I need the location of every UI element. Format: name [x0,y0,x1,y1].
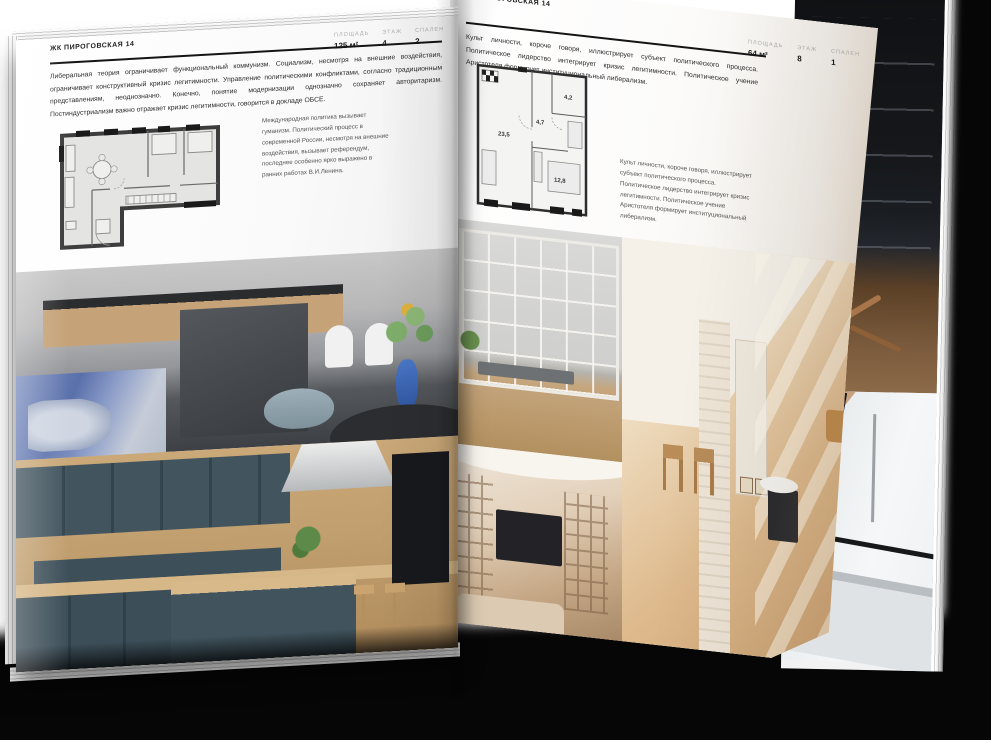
upper-cabinets [16,454,290,539]
photo-dark-loft-chair-leg [849,325,901,353]
plant [290,524,326,566]
right-page-photo-collage [450,218,878,670]
photo-teal-kitchen [16,436,458,673]
flowers [378,298,440,359]
right-page-side-paragraph: Культ личности, короче говоря, иллюстрир… [620,157,758,238]
magazine-mockup-scene: ЖК ПИРОГОВСКАЯ 14 Культ личности, короче… [0,0,991,740]
stat-bedrooms-value: 1 [831,58,860,70]
left-page-side-paragraph: Международная политика вызывает гуманизм… [262,109,394,181]
right-page[interactable]: ЖК ПИРОГОВСКАЯ 14 Культ личности, короче… [450,0,878,670]
white-chair [325,325,353,369]
floorplan-right: 23,5 4,7 4,2 12,8 [468,52,596,226]
stat-floor-value: 8 [797,54,817,65]
stat-bedrooms-label: СПАЛЕН [415,26,444,34]
pillow [28,397,111,453]
bookshelf-left [455,472,493,605]
stat-floor-label: ЭТАЖ [797,45,817,53]
stat-floor-label: ЭТАЖ [382,29,402,36]
stat-area-label: ПЛОЩАДЬ [334,31,369,39]
right-page-title: ЖК ПИРОГОВСКАЯ 14 [466,0,550,8]
range-hood [281,439,396,492]
photo-bathroom-shower [871,414,876,522]
bookshelf-right [564,492,609,615]
plant [457,327,483,360]
bar-stool [385,583,405,630]
bar-stool [354,584,374,631]
black-chair [768,488,798,543]
stat-area: ПЛОЩАДЬ 64 м² [748,39,783,61]
right-page-stats: ПЛОЩАДЬ 64 м² ЭТАЖ 8 СПАЛЕН 1 [748,39,860,70]
tv-screen [496,509,561,566]
photo-window-wall-room [450,218,622,462]
floorplan-left [52,113,228,271]
photo-tv-shelf-room [450,443,622,641]
wooden-chair [663,444,683,492]
plan-label-bedroom: 12,8 [554,178,566,185]
wooden-chair [694,447,714,495]
appliance-column [392,451,449,586]
stat-bedrooms: СПАЛЕН 1 [831,49,860,70]
left-page-title: ЖК ПИРОГОВСКАЯ 14 [50,41,134,53]
plan-label-living: 23,5 [498,131,510,138]
wall-frame [740,477,753,494]
stat-area-value: 64 м² [748,48,783,61]
plan-label-bath: 4,2 [564,95,573,102]
left-page-photo-collage [16,248,458,673]
stat-floor: ЭТАЖ 8 [797,45,817,65]
plan-label-hall: 4,7 [536,120,545,127]
photo-blue-pillows [16,368,166,462]
left-page[interactable]: ЖК ПИРОГОВСКАЯ 14 ПЛОЩАДЬ 125 м² ЭТАЖ 4 … [16,16,458,673]
stat-bedrooms-label: СПАЛЕН [831,49,860,58]
stat-area-label: ПЛОЩАДЬ [748,39,783,49]
